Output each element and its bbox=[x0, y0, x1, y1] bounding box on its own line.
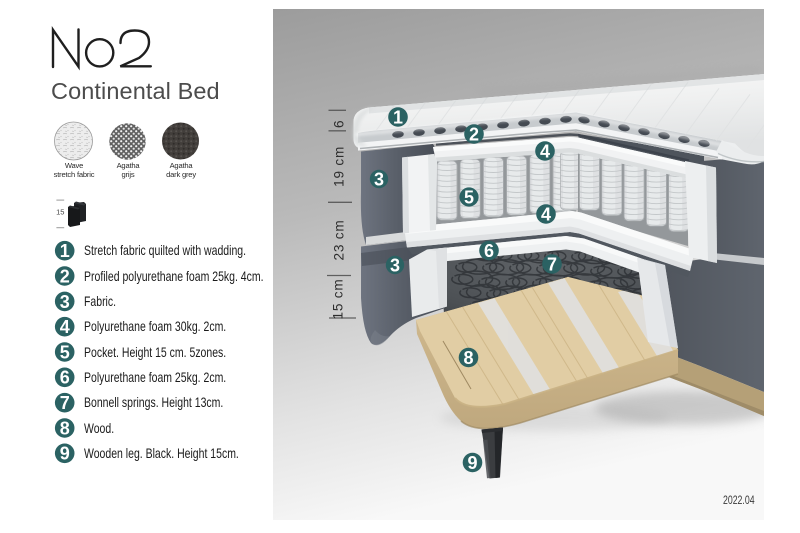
svg-text:4: 4 bbox=[60, 317, 70, 337]
svg-text:9: 9 bbox=[60, 444, 70, 464]
svg-text:7: 7 bbox=[547, 254, 557, 274]
svg-text:1: 1 bbox=[393, 107, 403, 127]
svg-text:1: 1 bbox=[60, 241, 70, 261]
svg-text:19 cm: 19 cm bbox=[331, 146, 346, 187]
svg-text:2: 2 bbox=[60, 266, 70, 286]
svg-text:6: 6 bbox=[484, 241, 494, 261]
svg-text:6: 6 bbox=[60, 368, 70, 388]
svg-text:7: 7 bbox=[60, 393, 70, 413]
svg-text:9: 9 bbox=[467, 453, 477, 473]
svg-text:3: 3 bbox=[374, 169, 384, 189]
svg-text:4: 4 bbox=[540, 141, 550, 161]
svg-text:23 cm: 23 cm bbox=[331, 219, 346, 260]
svg-text:5: 5 bbox=[60, 342, 70, 362]
svg-text:4: 4 bbox=[541, 204, 551, 224]
svg-text:3: 3 bbox=[390, 255, 400, 275]
svg-text:15 cm: 15 cm bbox=[330, 278, 345, 319]
svg-text:8: 8 bbox=[60, 418, 70, 438]
svg-text:6: 6 bbox=[332, 120, 347, 128]
svg-text:5: 5 bbox=[464, 187, 474, 207]
svg-text:8: 8 bbox=[463, 348, 473, 368]
svg-text:3: 3 bbox=[60, 292, 70, 312]
svg-text:2: 2 bbox=[469, 124, 479, 144]
